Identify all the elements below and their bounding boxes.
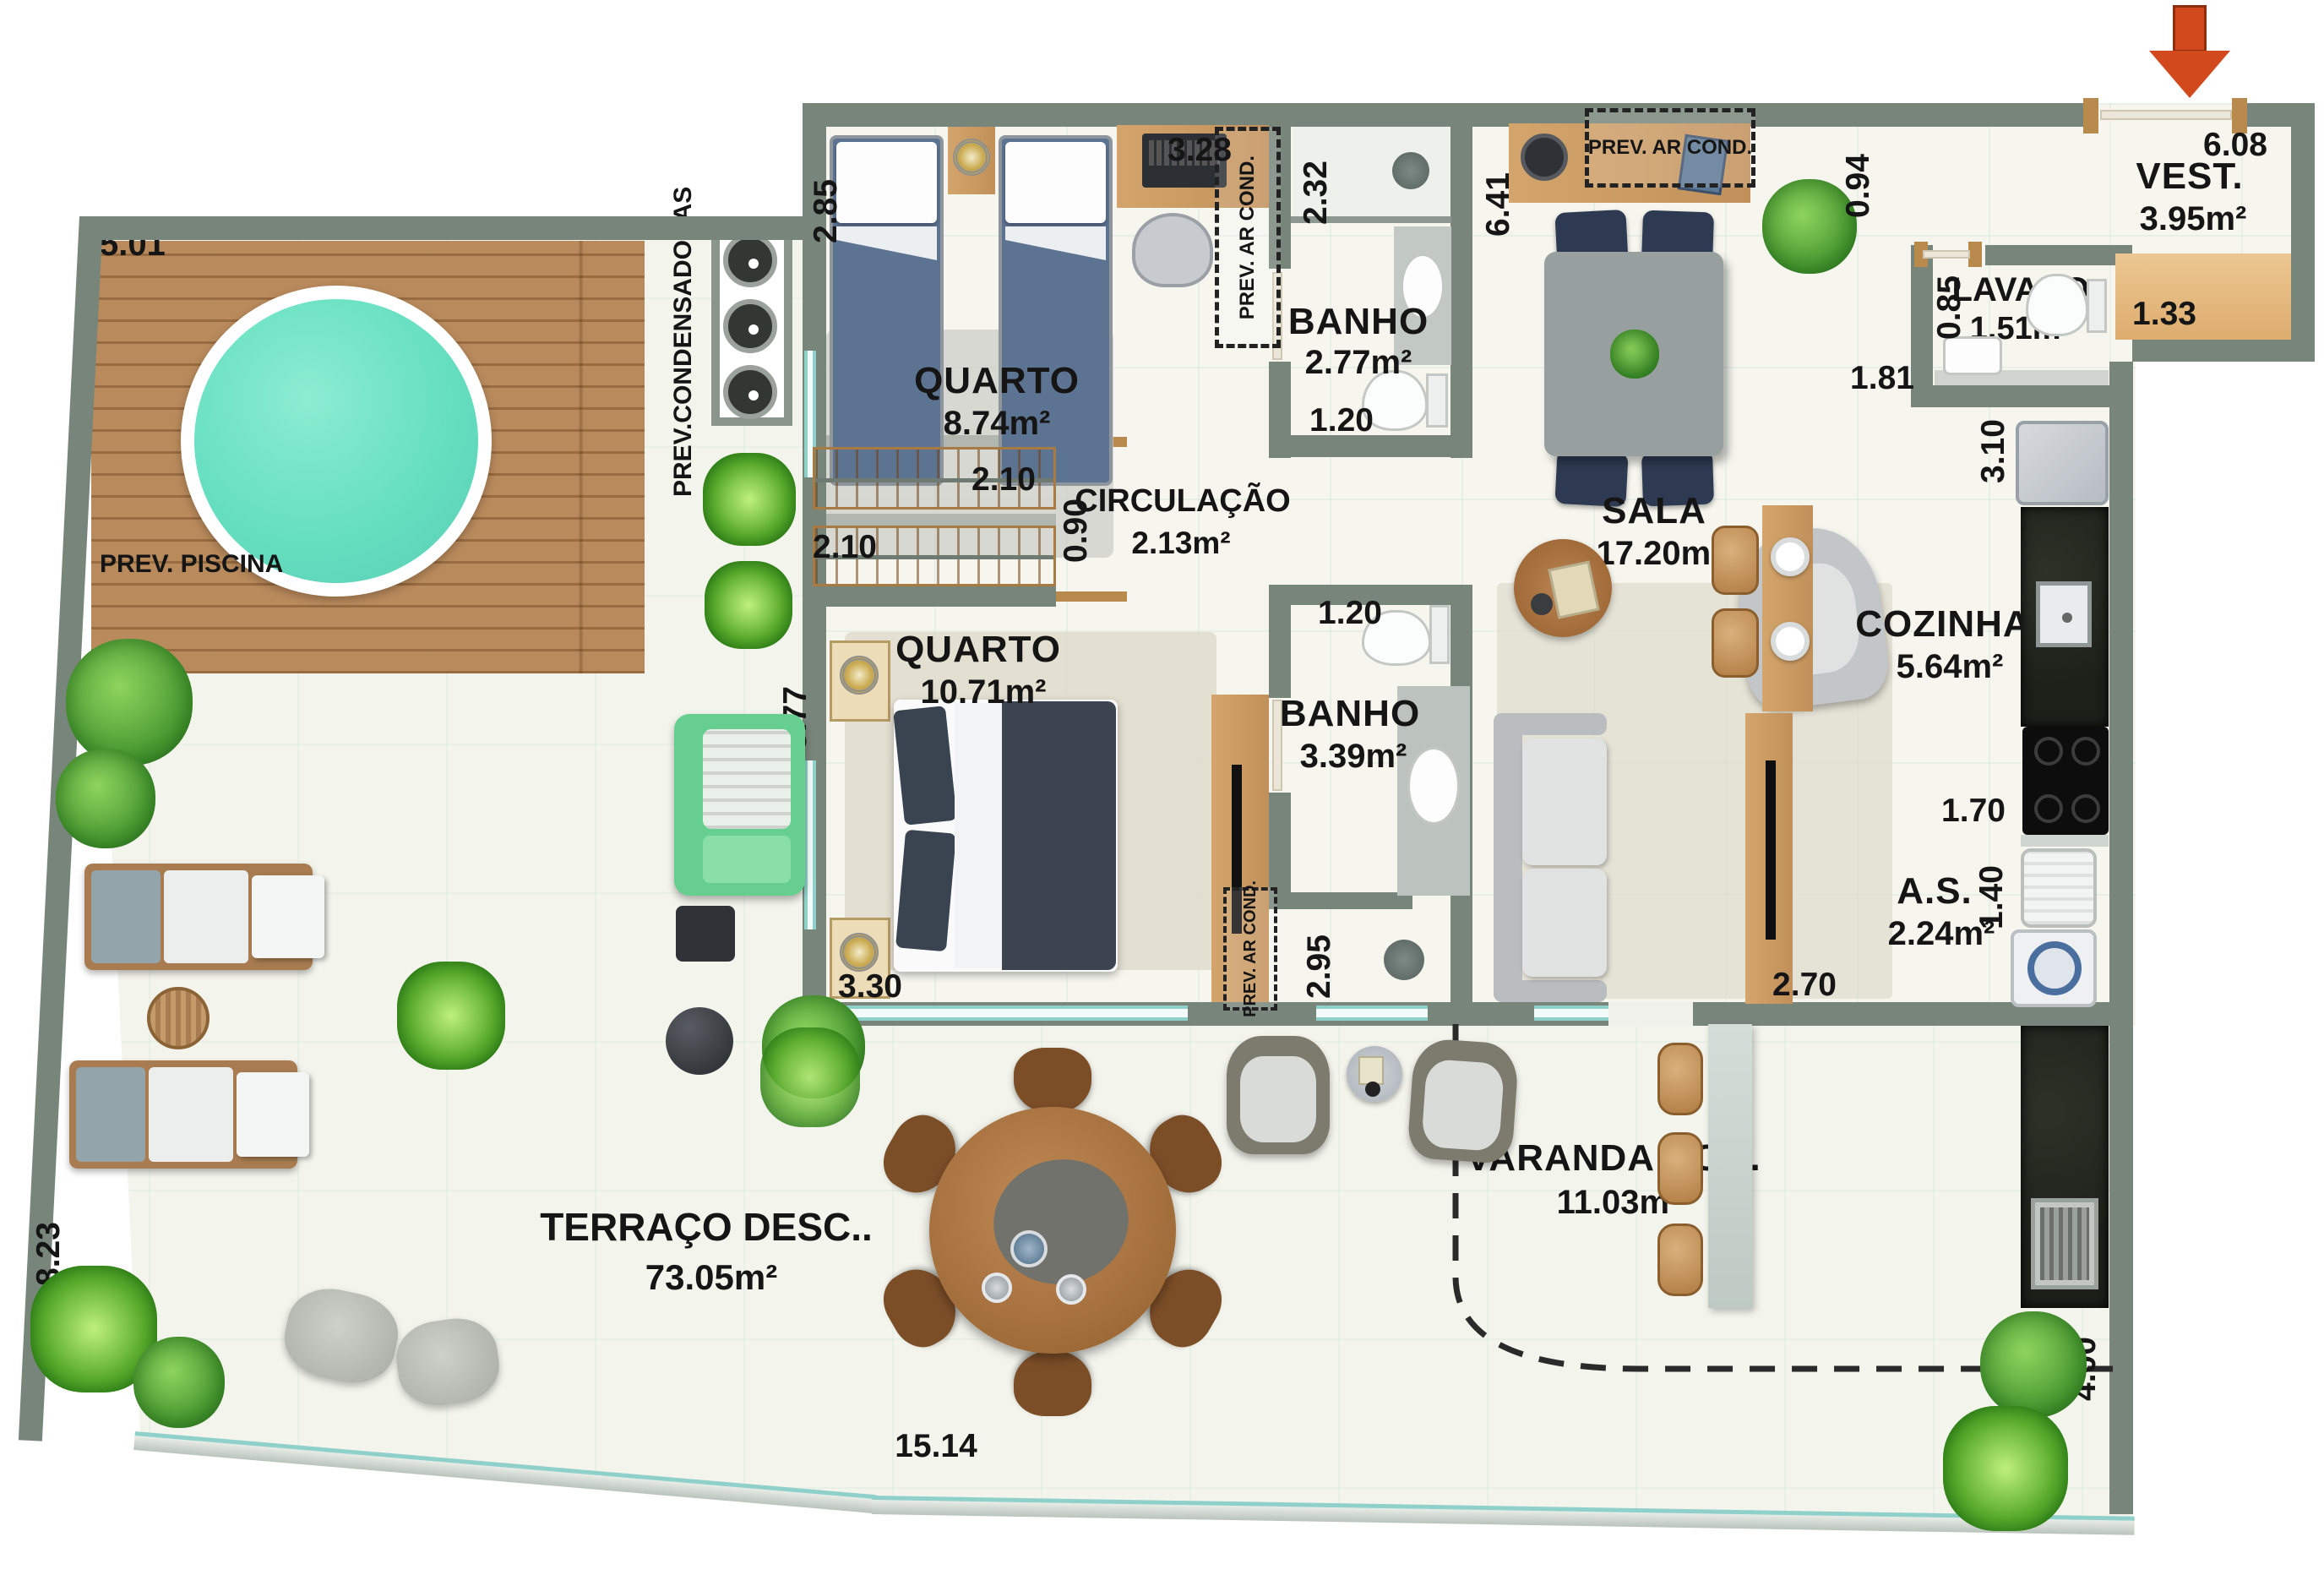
lavabo-bottom-wall (1911, 385, 2132, 407)
single-bed (830, 135, 944, 486)
sink-icon (1407, 747, 1460, 825)
breakfast-counter (1762, 505, 1813, 711)
banho2-name: BANHO (1280, 695, 1420, 733)
lamp-icon (840, 933, 879, 972)
fridge (2016, 421, 2109, 505)
quarto2-name: QUARTO (895, 630, 1061, 669)
terraco-area: 73.05m² (645, 1259, 777, 1296)
vest-area: 3.95m² (2140, 201, 2247, 237)
outdoor-chair (1014, 1048, 1091, 1114)
quarto1-area: 8.74m² (944, 406, 1051, 441)
dim-sala-left: 6.41 (1482, 149, 1515, 237)
dim-banho2-top: 1.20 (1318, 597, 1382, 631)
dim-closet-bottom: 2.10 (813, 531, 877, 565)
dim-cozinha-bottom: 1.70 (1941, 794, 2006, 829)
toilet-icon (2026, 274, 2088, 336)
double-bed (894, 700, 1118, 972)
dim-banho2-side: 2.95 (1303, 914, 1336, 999)
pouf (666, 1007, 733, 1075)
plant-icon (1980, 1311, 2087, 1418)
door-jamb (2083, 98, 2098, 134)
dim-closet-top: 2.10 (972, 463, 1036, 498)
dim-tv-base: 2.70 (1772, 968, 1837, 1003)
table-plant-icon (1610, 330, 1659, 379)
prev-condensadoras-label: PREV.CONDENSADORAS (671, 226, 696, 497)
sofa-armrest (1494, 980, 1607, 1002)
banho1-name: BANHO (1288, 302, 1429, 341)
lamp-icon (953, 139, 990, 176)
sala-area: 17.20m² (1597, 536, 1723, 571)
window-quarto2 (846, 1005, 1188, 1021)
sofa-cushion (1522, 738, 1607, 865)
circulacao-name: CIRCULAÇÃO (1075, 485, 1290, 519)
wicker-armchair (1407, 1038, 1520, 1164)
entry-arrow-icon (2149, 51, 2230, 98)
plant-icon (56, 749, 155, 848)
circulacao-area: 2.13m² (1131, 527, 1230, 560)
floor-plan: 5.01 PREV. PISCINA PREV.CONDENSADORAS (0, 0, 2324, 1575)
cozinha-area: 5.64m² (1897, 649, 2004, 684)
pool-water (194, 299, 478, 583)
as-name: A.S. (1897, 872, 1973, 911)
dim-vest-top: 6.08 (2203, 128, 2267, 163)
cozinha-name: COZINHA (1855, 605, 2030, 644)
dim-sala-top: 0.94 (1842, 125, 1875, 218)
outdoor-sofa-green (674, 714, 805, 896)
dim-banho1-side: 2.32 (1299, 140, 1332, 225)
lounger-table (147, 987, 210, 1049)
toilet-tank (2087, 279, 2107, 333)
window (804, 760, 816, 929)
prev-piscina-label: PREV. PISCINA (100, 551, 283, 578)
toilet-tank (1429, 605, 1450, 664)
dim-quarto2-bottom: 3.30 (838, 970, 902, 1005)
plant-icon (760, 1027, 860, 1127)
vest-bottom-wall (2132, 340, 2315, 362)
plant-icon (397, 962, 505, 1070)
shower-head-icon (1384, 940, 1424, 980)
quarto2-area: 10.71m² (921, 674, 1047, 710)
prev-ar-cond-sala: PREV. AR COND. (1585, 108, 1755, 188)
desk-chair (1132, 213, 1213, 287)
sun-lounger (69, 1060, 297, 1169)
dim-vest-wardrobe: 1.33 (2132, 297, 2196, 332)
banho2-left-wall (1269, 793, 1291, 894)
varanda-stool (1657, 1043, 1703, 1115)
plate-icon (1771, 622, 1810, 661)
plant-icon (133, 1337, 225, 1428)
lamp-icon (840, 656, 879, 695)
banho1-area: 2.77m² (1305, 345, 1412, 380)
plate-icon (1771, 537, 1810, 576)
terrace-top-wall (79, 216, 818, 240)
window-sala (1316, 1005, 1428, 1021)
wicker-armchair (1227, 1036, 1330, 1154)
kitchen-right-wall (2109, 362, 2133, 1024)
outdoor-dining-table (929, 1107, 1176, 1354)
dim-terraco-bottom: 15.14 (895, 1430, 977, 1464)
banho2-left-wall (1269, 605, 1291, 698)
sofa-cushion (1522, 869, 1607, 977)
as-area: 2.24m² (1888, 916, 1995, 951)
door-threshold (1056, 591, 1127, 602)
plant-icon (66, 639, 193, 766)
washing-machine-icon (2011, 929, 2097, 1007)
varanda-counter (1708, 1024, 1752, 1308)
banho1-right-wall (1450, 103, 1472, 458)
dim-lavabo-width: 0.85 (1933, 265, 1966, 340)
vest-right-wall (2291, 103, 2315, 362)
sofa-back (1494, 713, 1522, 1002)
terraco-name: TERRAÇO DESC.. (540, 1207, 873, 1247)
plant-icon (705, 561, 792, 649)
dim-banho1-bottom: 1.20 (1309, 404, 1374, 439)
closet-bottom-wall (803, 586, 1056, 607)
outdoor-side-table (676, 906, 735, 962)
varanda-stool (1657, 1223, 1703, 1296)
banho2-area: 3.39m² (1300, 738, 1407, 774)
tv-icon (1766, 760, 1776, 940)
lavabo-top-wall (1985, 245, 2132, 265)
outdoor-chair (1014, 1350, 1091, 1416)
varanda-stool (1657, 1132, 1703, 1205)
entry-door-leaf (2100, 110, 2232, 120)
laundry-tub-icon (2021, 848, 2097, 928)
sala-name: SALA (1602, 492, 1706, 531)
sun-lounger (84, 864, 313, 970)
sofa-armrest (1494, 713, 1607, 735)
dim-quarto1-width: 2.85 (809, 142, 842, 243)
condenser-unit (723, 299, 777, 353)
bbq-grill-icon (2031, 1198, 2098, 1289)
side-table (1347, 1046, 1402, 1102)
coffee-table (1514, 539, 1612, 637)
condenser-unit (723, 365, 777, 419)
shower-head-icon (1392, 152, 1429, 189)
as-divider (2021, 835, 2109, 847)
plant-icon (703, 453, 796, 546)
sink-icon (1943, 336, 2002, 375)
dim-cozinha-side: 3.10 (1977, 389, 2010, 483)
dim-quarto1-top: 3.28 (1167, 134, 1232, 168)
entry-arrow-shaft (2173, 5, 2207, 52)
prev-ar-cond-quarto2: PREV. AR COND. (1223, 887, 1277, 1011)
banho2-shower-wall (1269, 892, 1412, 909)
toilet-tank (1426, 373, 1448, 428)
lavabo-door-leaf (1923, 250, 1970, 259)
cooktop-icon (2022, 727, 2109, 835)
counter-stool (1712, 608, 1759, 678)
counter-stool (1712, 526, 1759, 595)
quarto1-name: QUARTO (914, 362, 1080, 401)
plant-icon (1943, 1406, 2068, 1531)
kitchen-sink-icon (2036, 581, 2092, 647)
door-jamb (1968, 242, 1982, 267)
dim-lavabo-length: 1.81 (1850, 362, 1914, 396)
condenser-unit (723, 233, 777, 287)
